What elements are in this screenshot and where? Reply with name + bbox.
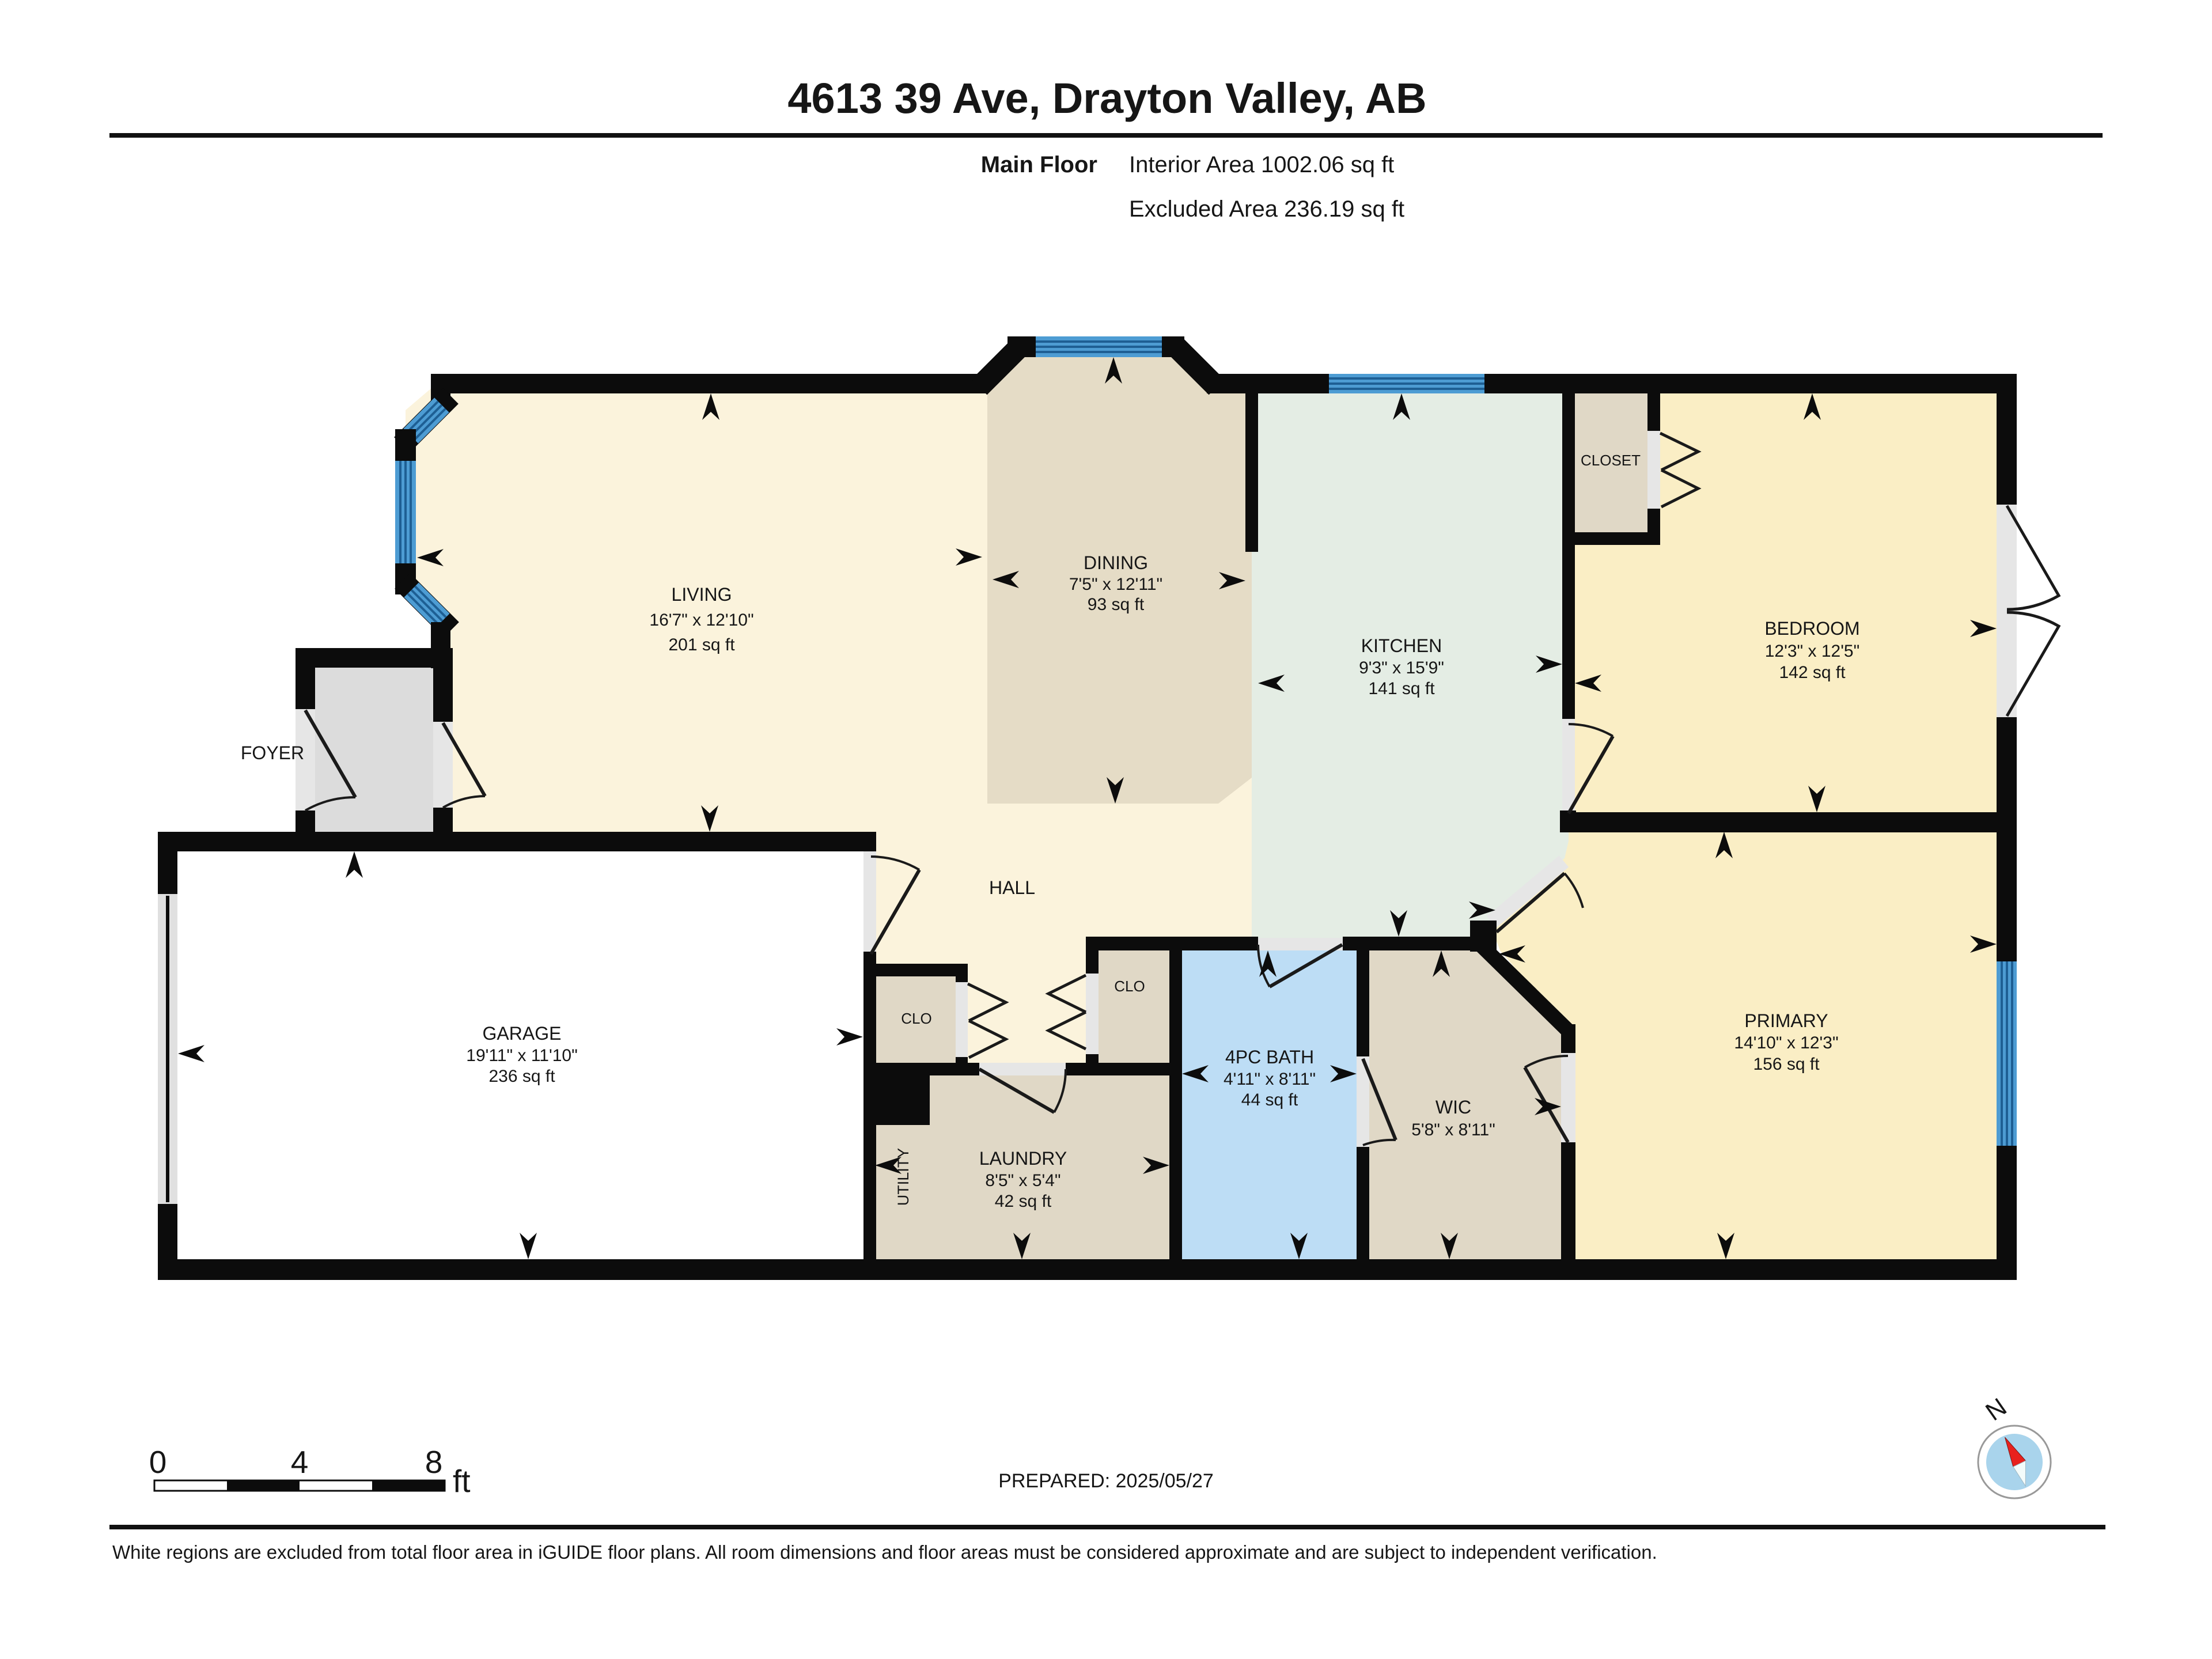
svg-text:142 sq ft: 142 sq ft — [1779, 663, 1846, 682]
svg-text:PRIMARY: PRIMARY — [1744, 1010, 1828, 1031]
svg-text:156 sq ft: 156 sq ft — [1753, 1055, 1820, 1074]
svg-text:White regions are excluded fro: White regions are excluded from total fl… — [112, 1541, 1657, 1563]
svg-text:7'5" x 12'11": 7'5" x 12'11" — [1069, 575, 1162, 594]
svg-text:ft: ft — [453, 1463, 471, 1499]
svg-text:HALL: HALL — [989, 877, 1035, 898]
svg-text:Interior Area 1002.06 sq ft: Interior Area 1002.06 sq ft — [1129, 152, 1394, 177]
svg-text:FOYER: FOYER — [241, 743, 304, 763]
svg-text:KITCHEN: KITCHEN — [1361, 635, 1442, 656]
svg-text:8: 8 — [425, 1444, 443, 1480]
svg-text:141 sq ft: 141 sq ft — [1368, 679, 1435, 698]
svg-text:4: 4 — [291, 1444, 309, 1480]
svg-text:8'5" x 5'4": 8'5" x 5'4" — [985, 1171, 1060, 1190]
svg-text:CLO: CLO — [1114, 978, 1145, 995]
svg-text:16'7" x 12'10": 16'7" x 12'10" — [649, 611, 753, 630]
svg-text:12'3" x 12'5": 12'3" x 12'5" — [1765, 642, 1860, 661]
svg-text:0: 0 — [149, 1444, 167, 1480]
svg-text:UTILITY: UTILITY — [895, 1148, 912, 1206]
svg-text:201 sq ft: 201 sq ft — [668, 635, 735, 654]
svg-text:9'3" x 15'9": 9'3" x 15'9" — [1359, 658, 1444, 677]
svg-text:Main Floor: Main Floor — [981, 152, 1097, 177]
svg-text:42 sq ft: 42 sq ft — [995, 1192, 1052, 1211]
svg-text:CLOSET: CLOSET — [1581, 452, 1641, 469]
svg-text:WIC: WIC — [1435, 1097, 1471, 1118]
svg-text:CLO: CLO — [901, 1010, 931, 1027]
svg-text:PREPARED: 2025/05/27: PREPARED: 2025/05/27 — [998, 1470, 1214, 1492]
svg-text:236 sq ft: 236 sq ft — [488, 1067, 555, 1086]
svg-text:DINING: DINING — [1084, 552, 1148, 573]
svg-text:44 sq ft: 44 sq ft — [1241, 1090, 1298, 1109]
svg-text:19'11" x 11'10": 19'11" x 11'10" — [466, 1046, 577, 1065]
svg-text:14'10" x 12'3": 14'10" x 12'3" — [1734, 1033, 1838, 1052]
svg-text:4613 39 Ave, Drayton Valley, A: 4613 39 Ave, Drayton Valley, AB — [787, 74, 1426, 122]
svg-text:LAUNDRY: LAUNDRY — [979, 1148, 1067, 1169]
svg-text:93 sq ft: 93 sq ft — [1088, 595, 1145, 614]
svg-text:5'8" x 8'11": 5'8" x 8'11" — [1411, 1120, 1495, 1139]
svg-text:4'11" x 8'11": 4'11" x 8'11" — [1224, 1070, 1316, 1089]
svg-text:4PC BATH: 4PC BATH — [1225, 1047, 1314, 1067]
svg-text:BEDROOM: BEDROOM — [1764, 618, 1859, 639]
svg-text:LIVING: LIVING — [672, 584, 732, 605]
svg-text:GARAGE: GARAGE — [483, 1023, 562, 1044]
svg-text:Excluded Area 236.19 sq ft: Excluded Area 236.19 sq ft — [1129, 196, 1404, 222]
